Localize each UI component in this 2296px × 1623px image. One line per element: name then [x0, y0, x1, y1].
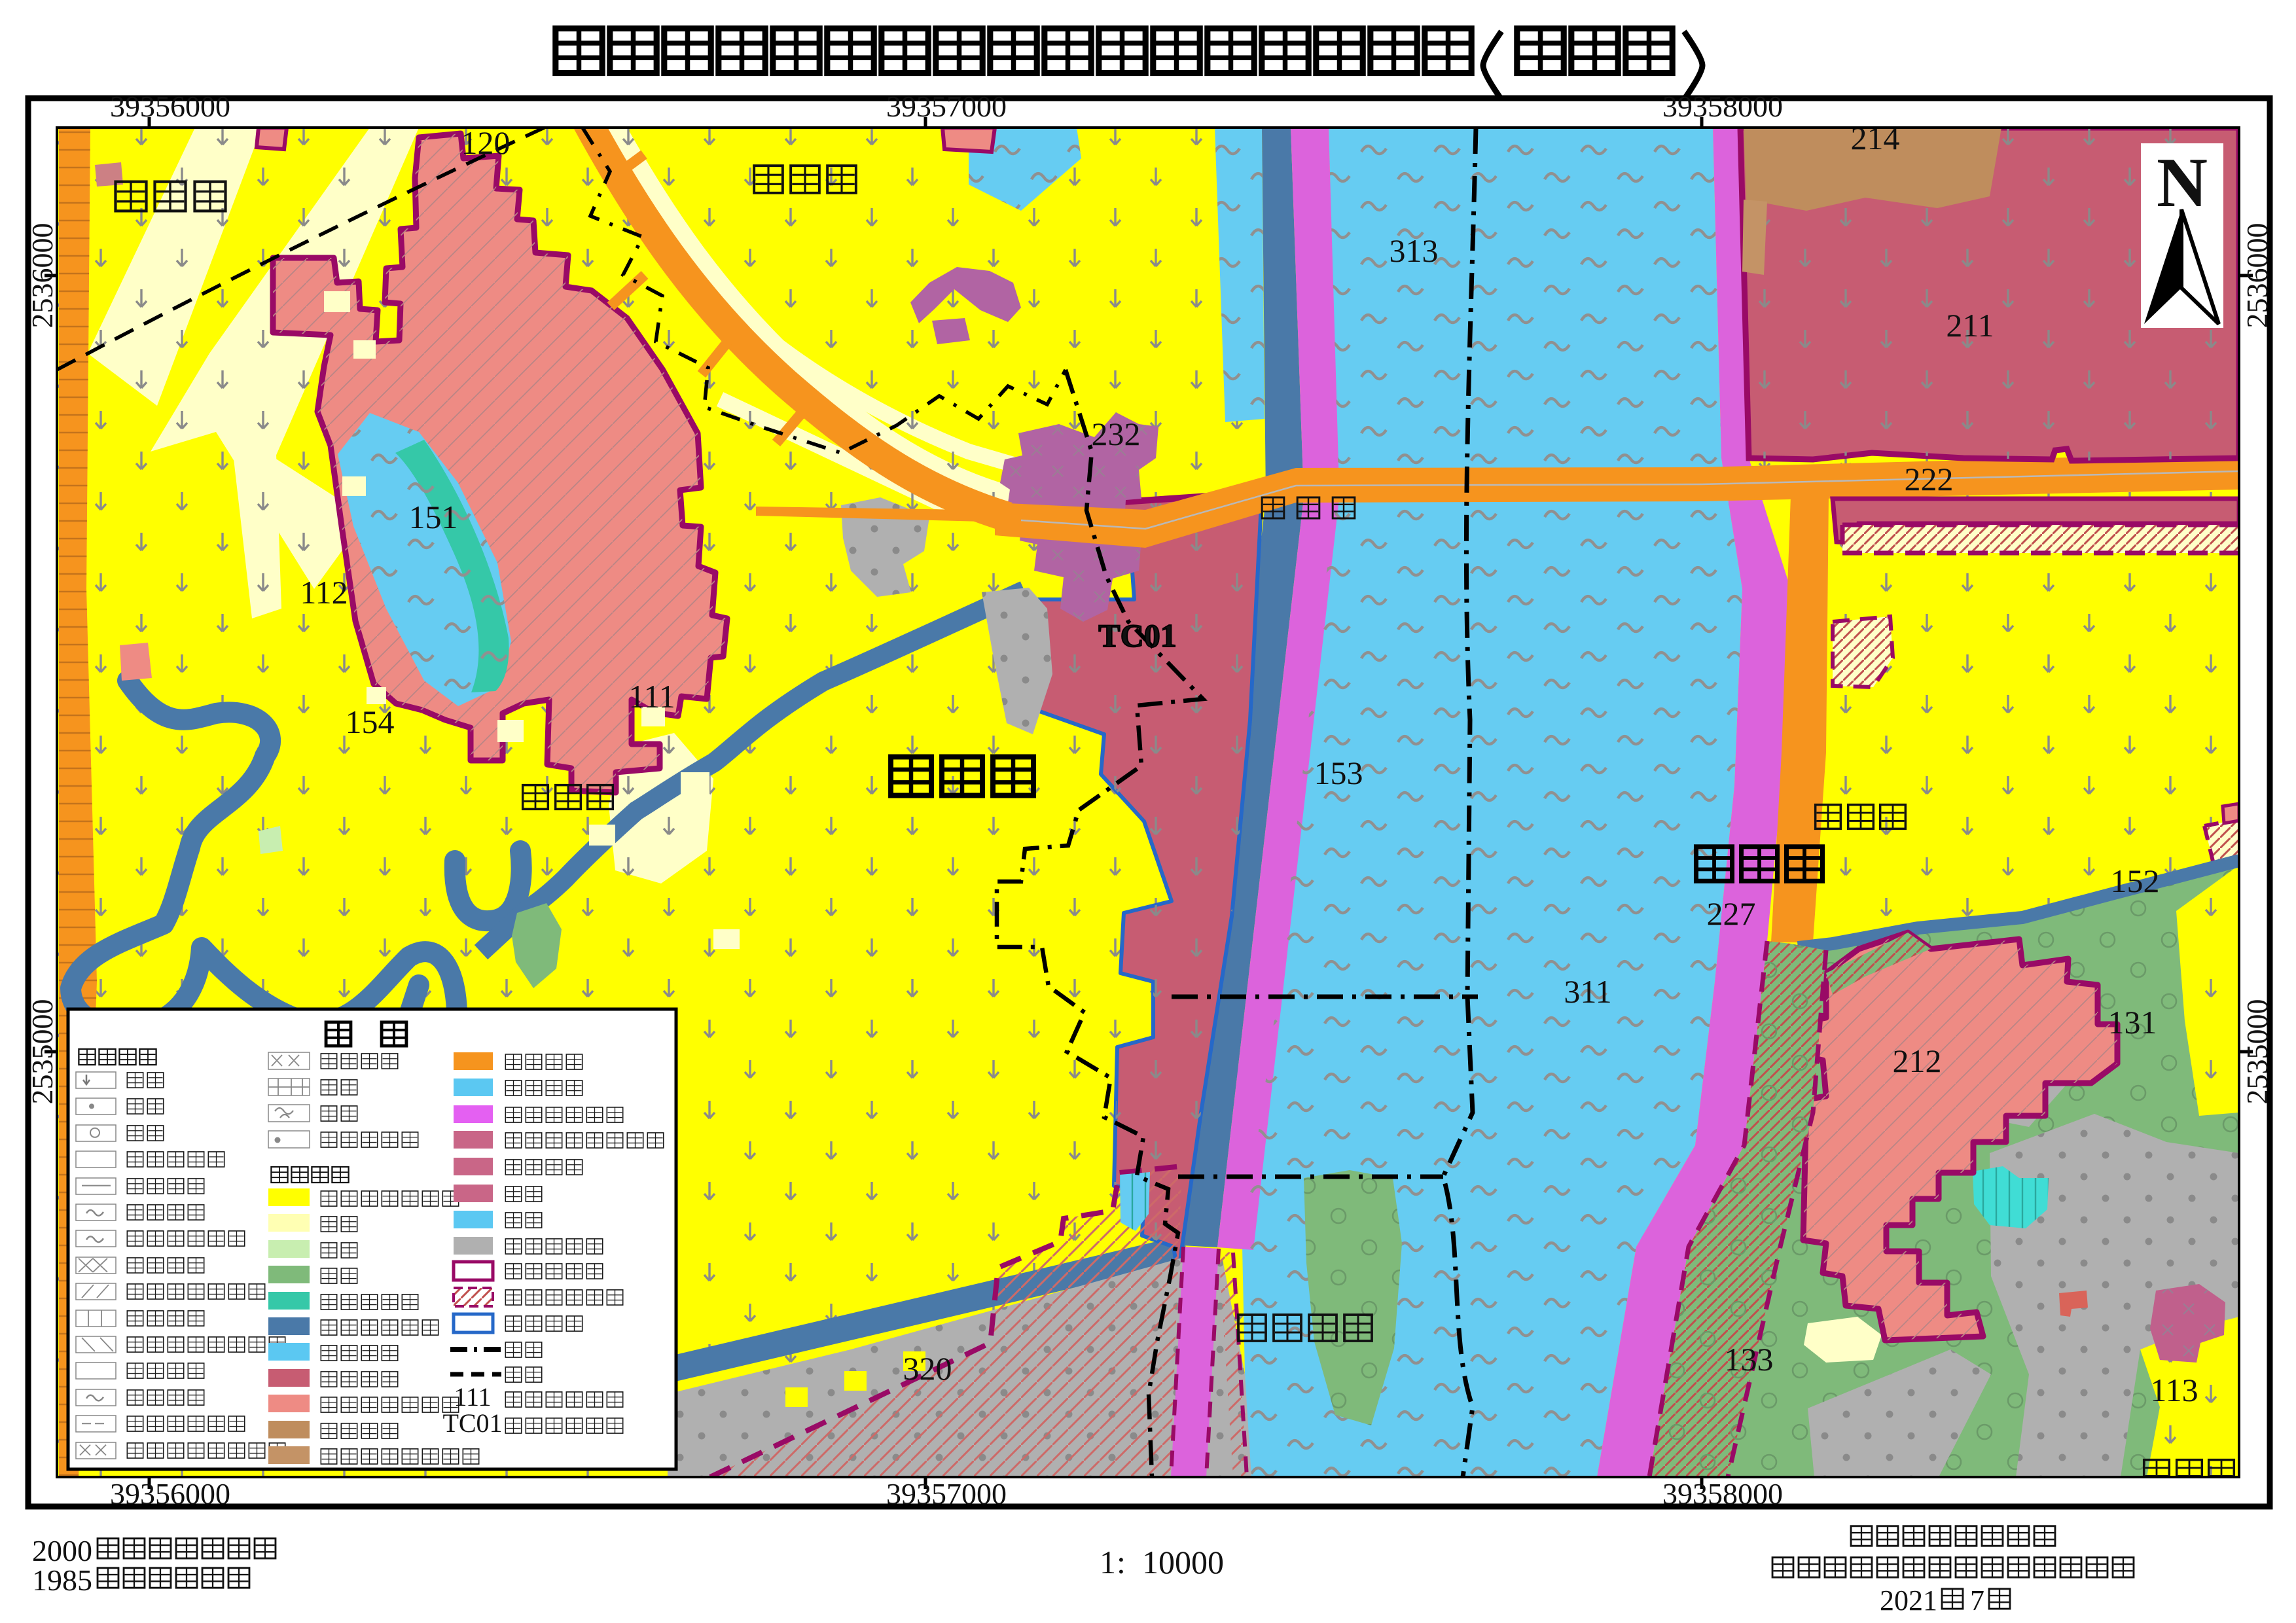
svg-text:232: 232	[1092, 416, 1141, 452]
svg-text:7: 7	[1970, 1584, 1984, 1616]
svg-text::: :	[1117, 1544, 1126, 1580]
svg-text:214: 214	[1851, 120, 1900, 156]
svg-text:39356000: 39356000	[110, 90, 230, 123]
svg-text:211: 211	[1946, 307, 1994, 344]
svg-text:2000: 2000	[32, 1534, 92, 1567]
svg-text:131: 131	[2108, 1004, 2157, 1041]
svg-text:111: 111	[454, 1382, 491, 1412]
svg-text:10000: 10000	[1142, 1544, 1224, 1580]
svg-text:151: 151	[409, 499, 458, 535]
svg-text:39356000: 39356000	[110, 1477, 230, 1510]
svg-text:154: 154	[346, 704, 395, 740]
svg-text:112: 112	[300, 574, 348, 611]
svg-text:2535000: 2535000	[2240, 999, 2274, 1105]
svg-text:111: 111	[628, 678, 675, 715]
svg-text:113: 113	[2150, 1372, 2198, 1408]
svg-text:311: 311	[1564, 973, 1611, 1010]
svg-text:222: 222	[1905, 461, 1954, 497]
svg-text:2536000: 2536000	[2240, 223, 2274, 329]
svg-text:153: 153	[1314, 755, 1363, 791]
svg-text:2535000: 2535000	[26, 999, 59, 1105]
svg-text:39358000: 39358000	[1662, 1477, 1783, 1510]
svg-text:313: 313	[1390, 232, 1439, 269]
svg-text:39357000: 39357000	[886, 1477, 1007, 1510]
svg-text:152: 152	[2111, 863, 2160, 899]
svg-text:TC01: TC01	[442, 1408, 502, 1438]
svg-text:2536000: 2536000	[26, 223, 59, 329]
svg-text:227: 227	[1707, 895, 1756, 932]
svg-text:39358000: 39358000	[1662, 90, 1783, 123]
svg-text:320: 320	[903, 1350, 952, 1387]
svg-text:TC01: TC01	[1098, 617, 1176, 654]
svg-text:212: 212	[1893, 1043, 1942, 1079]
svg-text:2021: 2021	[1880, 1584, 1937, 1616]
svg-text:1985: 1985	[32, 1563, 92, 1597]
svg-text:133: 133	[1725, 1341, 1774, 1378]
svg-text:120: 120	[461, 124, 511, 161]
svg-text:39357000: 39357000	[886, 90, 1007, 123]
svg-text:1: 1	[1100, 1544, 1116, 1580]
